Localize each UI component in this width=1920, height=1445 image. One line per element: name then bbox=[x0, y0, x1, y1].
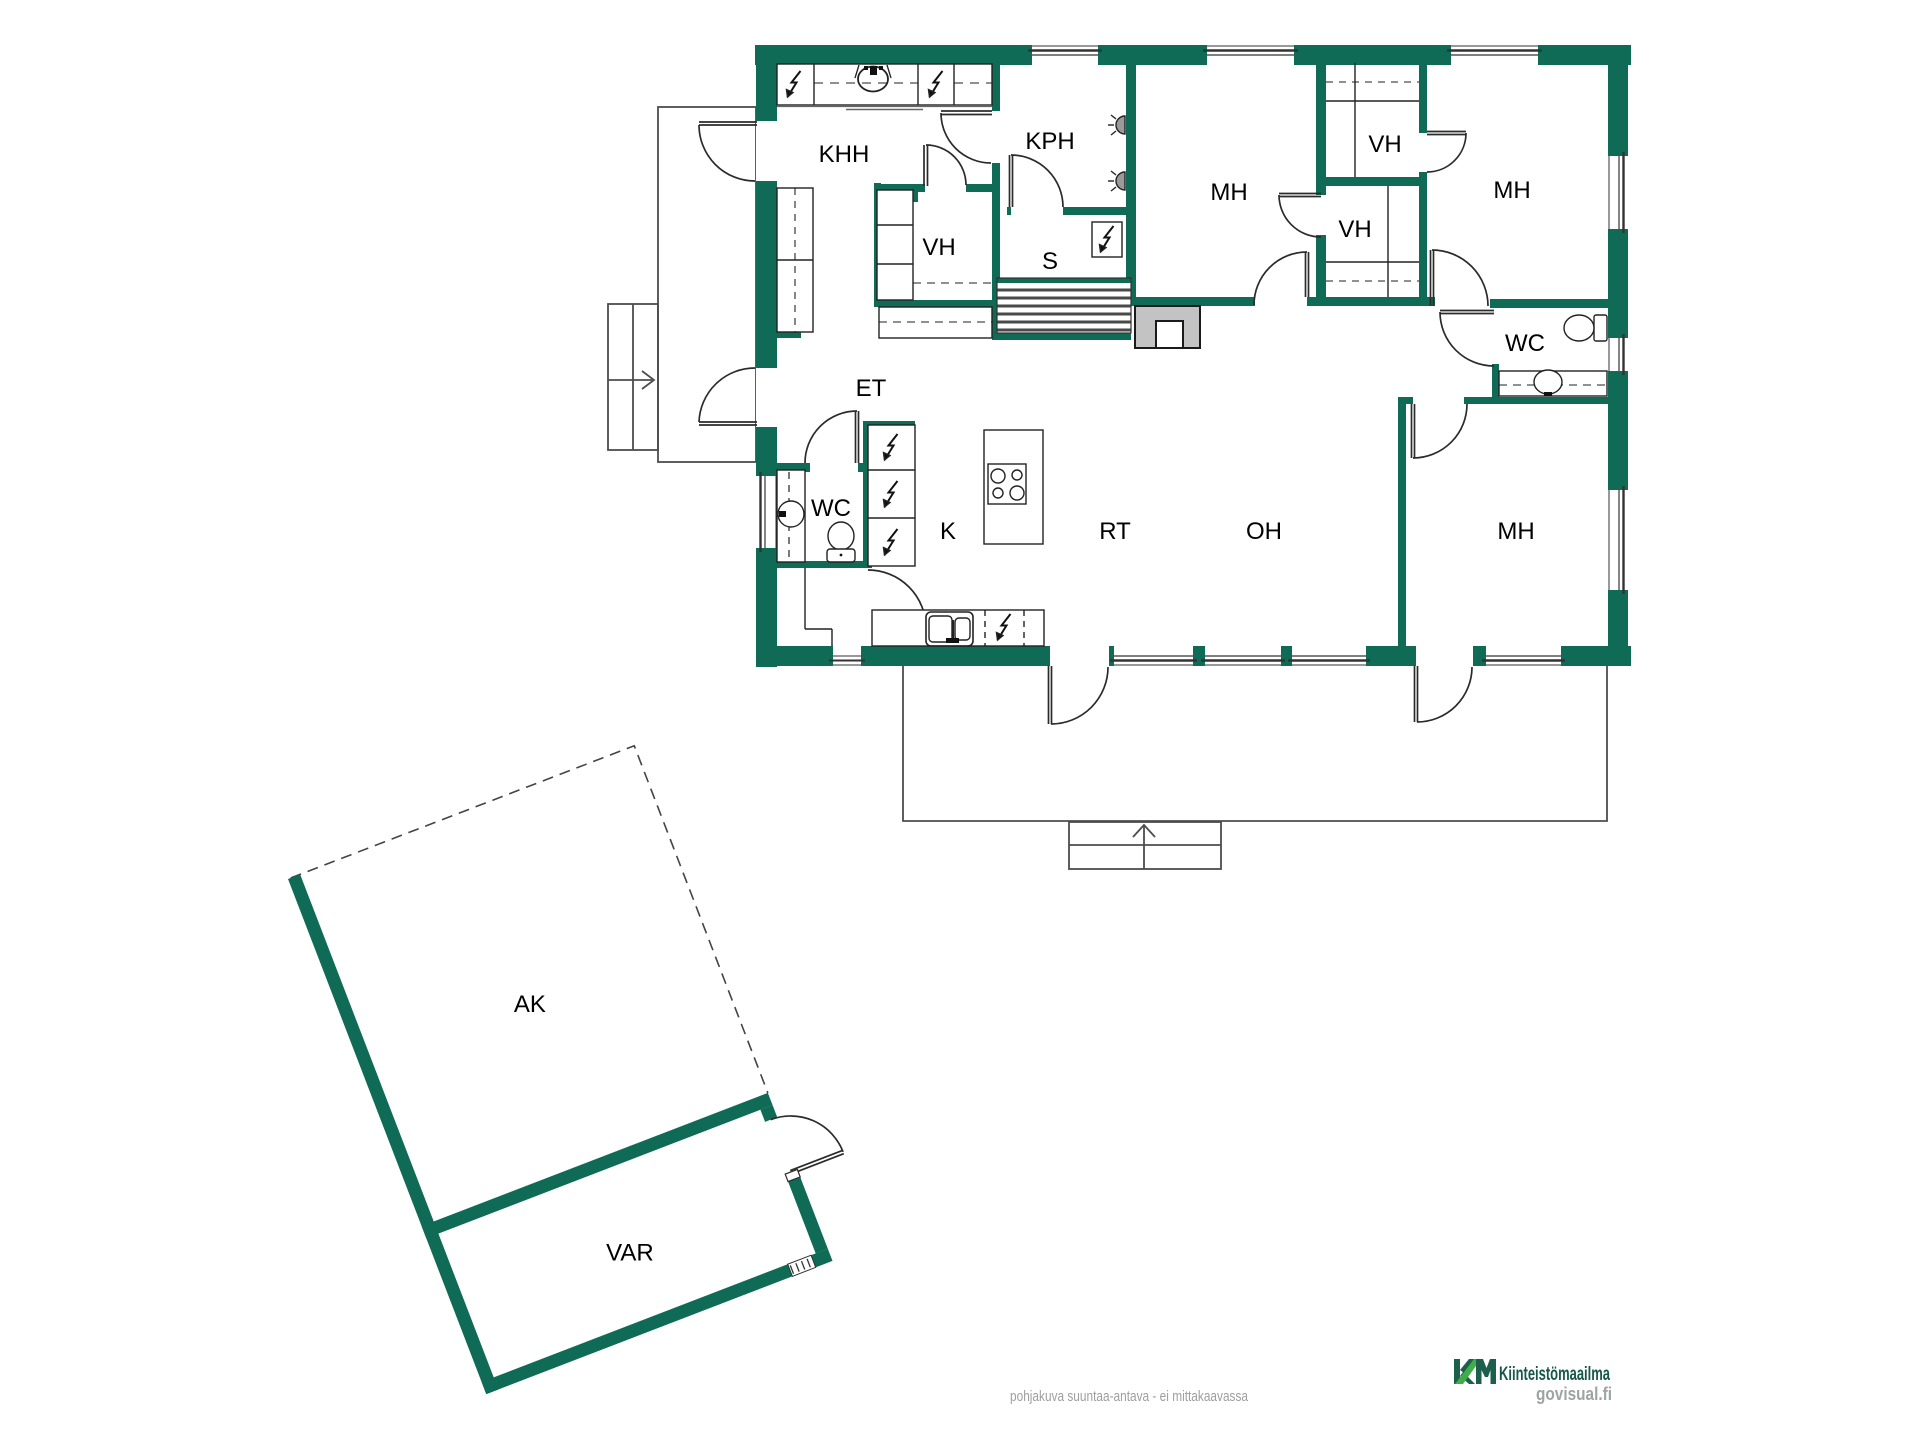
svg-text:Kiinteistömaailma: Kiinteistömaailma bbox=[1499, 1363, 1610, 1385]
svg-text:RT: RT bbox=[1099, 518, 1131, 545]
svg-text:pohjakuva suuntaa-antava - ei: pohjakuva suuntaa-antava - ei mittakaava… bbox=[1010, 1389, 1249, 1405]
svg-text:VH: VH bbox=[1338, 216, 1371, 243]
svg-text:VH: VH bbox=[1368, 131, 1401, 158]
svg-text:AK: AK bbox=[514, 991, 546, 1018]
svg-text:WC: WC bbox=[811, 495, 851, 522]
svg-text:MH: MH bbox=[1493, 177, 1530, 204]
svg-text:S: S bbox=[1042, 248, 1058, 275]
svg-text:KPH: KPH bbox=[1025, 128, 1074, 155]
svg-text:VAR: VAR bbox=[606, 1240, 654, 1267]
svg-text:OH: OH bbox=[1246, 518, 1282, 545]
svg-text:KHH: KHH bbox=[819, 141, 870, 168]
svg-text:WC: WC bbox=[1505, 330, 1545, 357]
svg-text:MH: MH bbox=[1497, 518, 1534, 545]
svg-text:VH: VH bbox=[922, 234, 955, 261]
svg-text:ET: ET bbox=[856, 375, 887, 402]
svg-text:K: K bbox=[940, 518, 956, 545]
svg-text:govisual.fi: govisual.fi bbox=[1536, 1384, 1612, 1404]
svg-text:MH: MH bbox=[1210, 179, 1247, 206]
